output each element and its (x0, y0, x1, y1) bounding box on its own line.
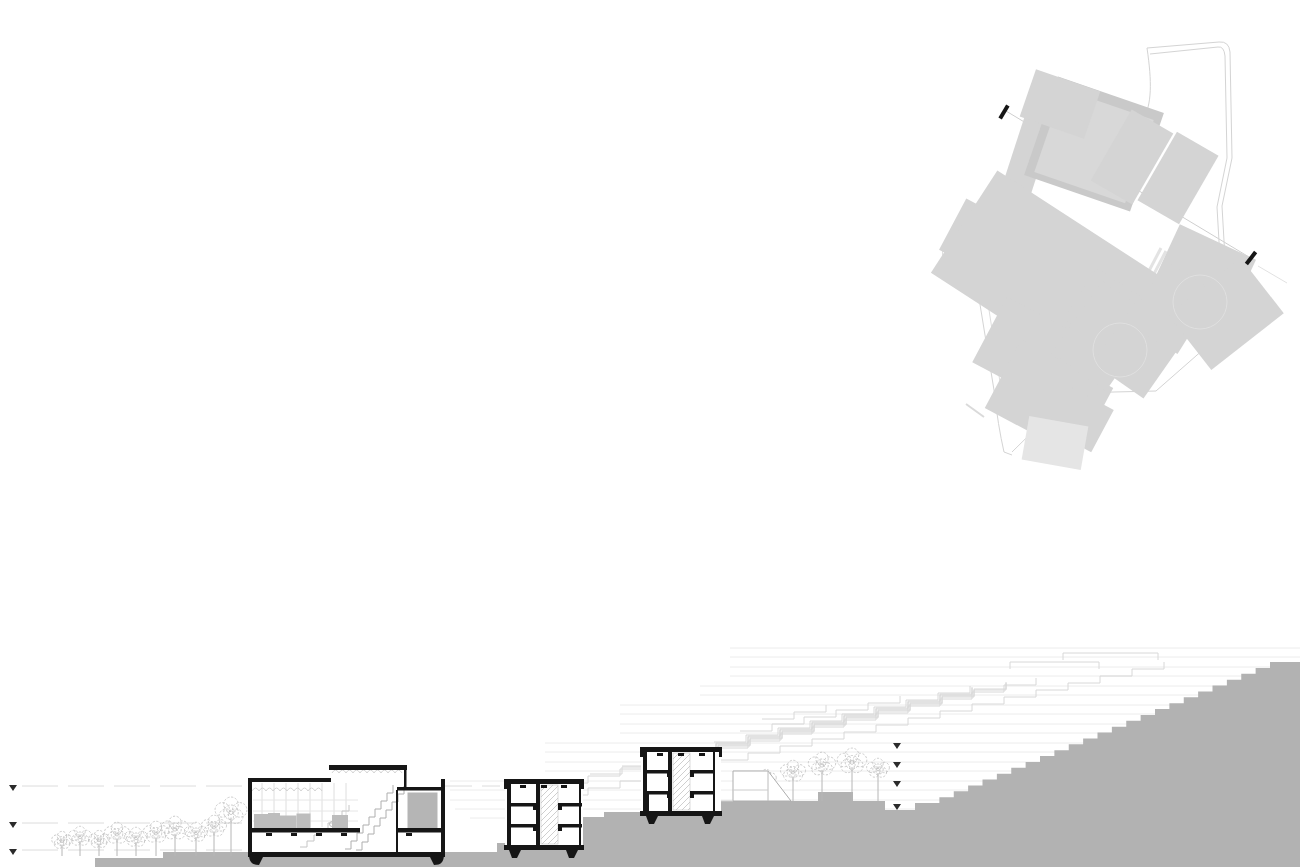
pavilion (721, 771, 791, 801)
trees-left (52, 797, 247, 856)
building-2-section (504, 779, 584, 858)
building-3-section (640, 747, 722, 824)
section-and-siteplan-drawing (0, 0, 1300, 867)
building-1-section (248, 765, 445, 865)
architectural-drawing-canvas (0, 0, 1300, 867)
site-plan (942, 42, 1287, 455)
